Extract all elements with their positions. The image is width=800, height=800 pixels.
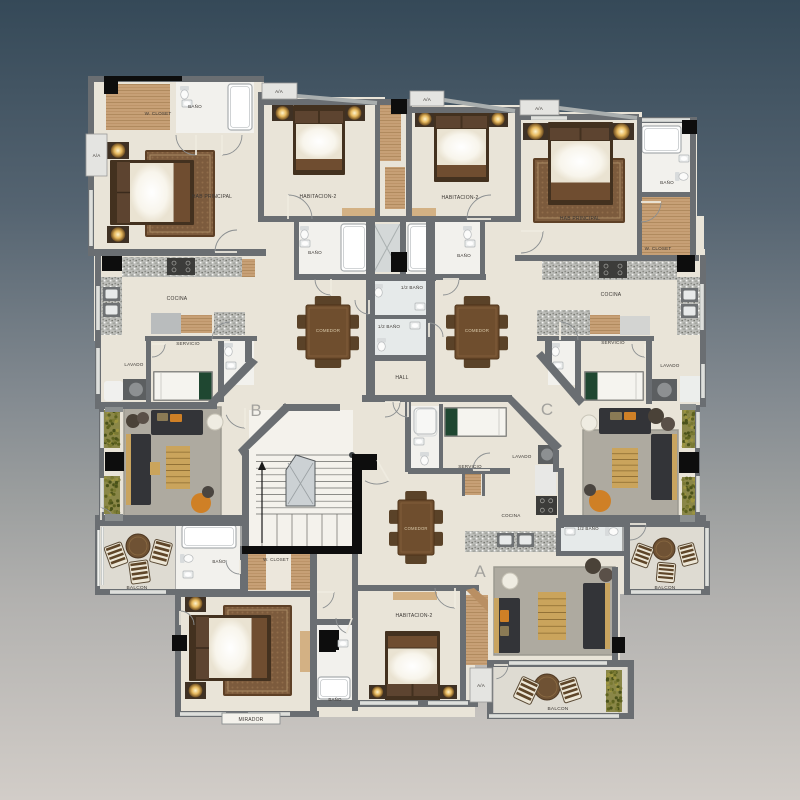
svg-text:COMEDOR: COMEDOR — [316, 328, 340, 333]
svg-text:SERVICIO: SERVICIO — [458, 464, 482, 469]
svg-text:HALL: HALL — [395, 375, 408, 381]
svg-text:LAVADO: LAVADO — [512, 454, 531, 459]
svg-text:A/A: A/A — [477, 683, 485, 688]
svg-text:A/A: A/A — [423, 97, 431, 102]
svg-text:SERVICIO: SERVICIO — [601, 340, 625, 345]
svg-text:HAB PRINCIPAL: HAB PRINCIPAL — [192, 194, 232, 200]
svg-text:LAVADO: LAVADO — [124, 362, 143, 367]
svg-text:1/2 BAÑO: 1/2 BAÑO — [378, 323, 401, 329]
svg-text:BAÑO: BAÑO — [212, 559, 226, 564]
svg-text:BAÑO: BAÑO — [308, 249, 322, 255]
svg-text:1/2 BAÑO: 1/2 BAÑO — [577, 526, 599, 531]
svg-text:HABITACION-2: HABITACION-2 — [395, 613, 432, 619]
svg-text:W. CLOSET: W. CLOSET — [263, 557, 289, 562]
svg-text:BAÑO: BAÑO — [660, 179, 674, 185]
svg-text:A/A: A/A — [93, 153, 101, 158]
svg-text:C: C — [541, 400, 553, 419]
svg-text:A/A: A/A — [535, 106, 543, 111]
svg-text:BALCON: BALCON — [548, 706, 569, 712]
svg-text:LAVADO: LAVADO — [660, 363, 679, 368]
svg-text:HABITACION-2: HABITACION-2 — [299, 194, 336, 200]
svg-text:COCINA: COCINA — [601, 292, 622, 298]
svg-text:COCINA: COCINA — [501, 513, 521, 518]
svg-text:COCINA: COCINA — [167, 296, 188, 302]
svg-text:HABITACION-2: HABITACION-2 — [441, 195, 478, 201]
svg-text:COMEDOR: COMEDOR — [404, 526, 427, 531]
svg-text:W. CLOSET: W. CLOSET — [145, 111, 172, 116]
svg-text:SERVICIO: SERVICIO — [176, 341, 200, 346]
svg-text:A/A: A/A — [275, 89, 283, 94]
svg-text:A: A — [474, 562, 486, 581]
svg-text:BALCON: BALCON — [655, 585, 676, 591]
svg-text:BAÑO: BAÑO — [328, 697, 342, 702]
svg-text:B: B — [250, 401, 261, 420]
svg-text:BAÑO: BAÑO — [457, 252, 471, 258]
svg-text:1/2 BAÑO: 1/2 BAÑO — [401, 284, 424, 290]
svg-text:BALCON: BALCON — [127, 585, 148, 591]
svg-text:HAB PRINCIPAL: HAB PRINCIPAL — [560, 216, 600, 222]
svg-text:MIRADOR: MIRADOR — [238, 717, 263, 723]
svg-text:COMEDOR: COMEDOR — [465, 328, 489, 333]
svg-text:BAÑO: BAÑO — [188, 103, 202, 109]
svg-text:W. CLOSET: W. CLOSET — [645, 246, 672, 251]
